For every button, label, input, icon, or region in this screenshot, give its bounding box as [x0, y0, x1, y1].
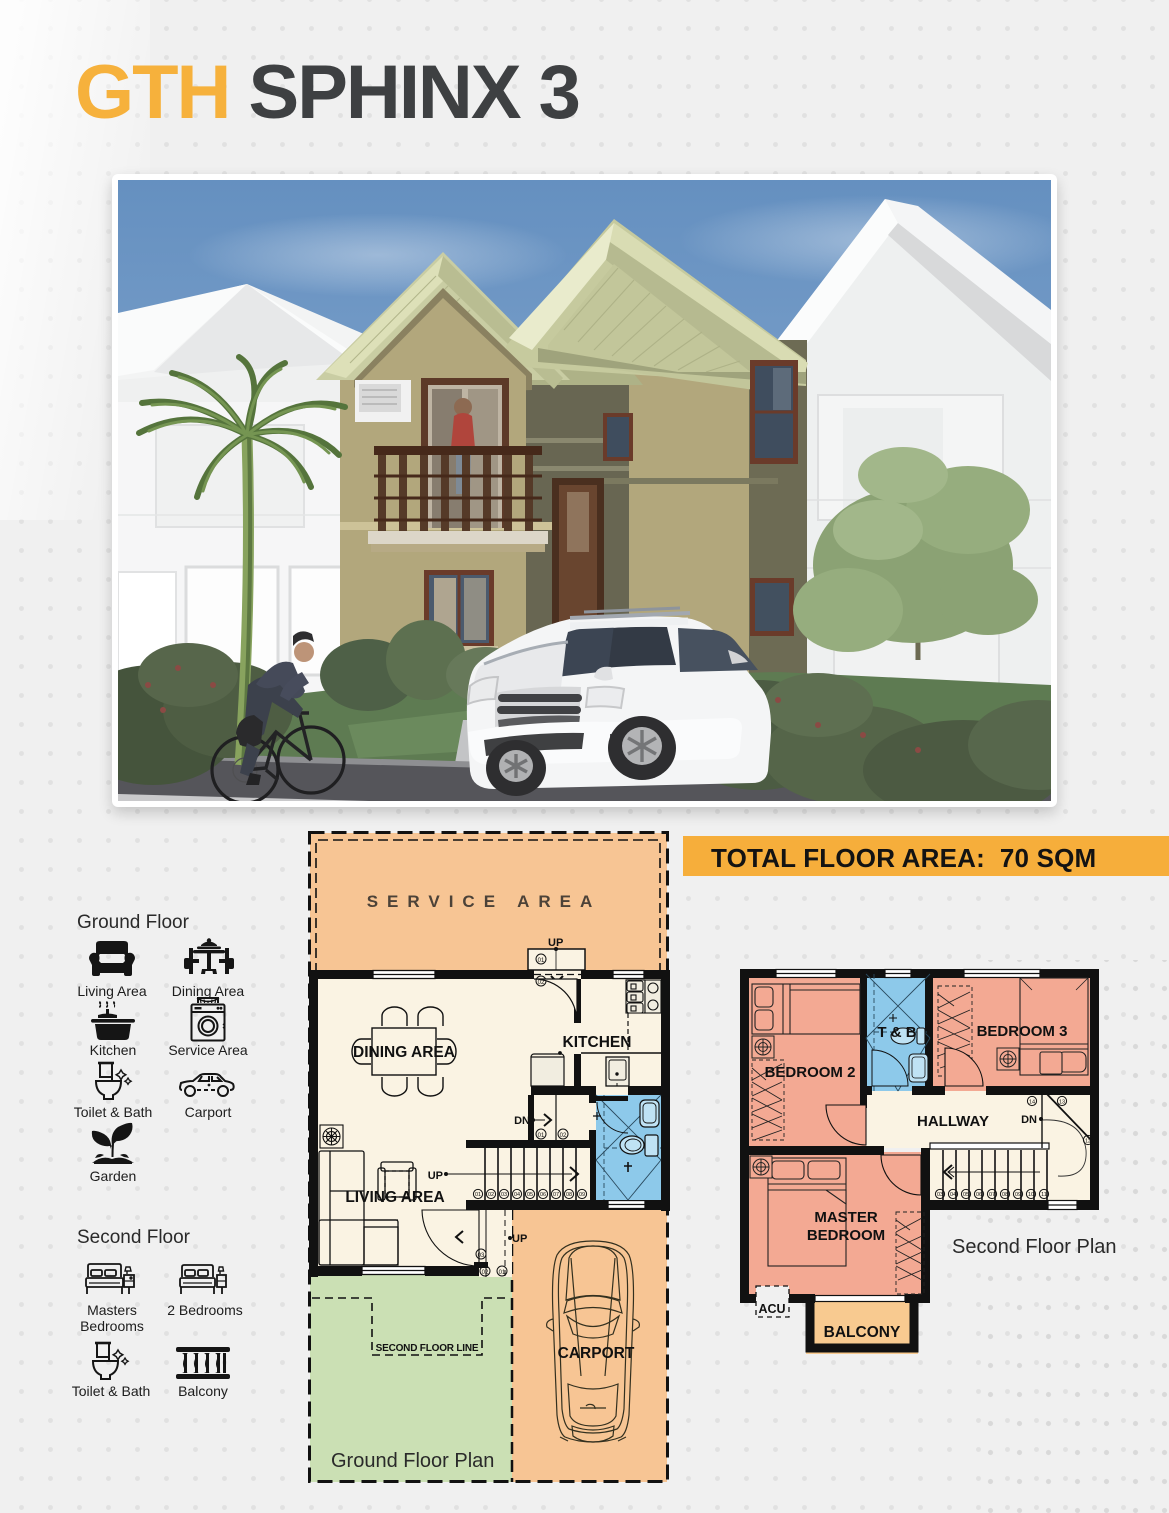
svg-text:07: 07 — [989, 1192, 995, 1198]
svg-text:DINING AREA: DINING AREA — [353, 1044, 455, 1061]
svg-text:SECOND FLOOR LINE: SECOND FLOOR LINE — [376, 1343, 479, 1354]
svg-text:05: 05 — [963, 1192, 969, 1198]
svg-text:02: 02 — [560, 1133, 567, 1139]
svg-text:02: 02 — [538, 980, 545, 986]
svg-text:06: 06 — [976, 1192, 982, 1198]
svg-text:HALLWAY: HALLWAY — [917, 1113, 989, 1130]
svg-text:CARPORT: CARPORT — [558, 1345, 635, 1362]
svg-text:KITCHEN: KITCHEN — [563, 1034, 632, 1051]
svg-text:MASTER: MASTER — [814, 1209, 878, 1226]
svg-text:03: 03 — [937, 1192, 943, 1198]
svg-text:13: 13 — [1059, 1100, 1065, 1106]
svg-text:T & B: T & B — [877, 1024, 916, 1041]
svg-text:DN: DN — [1021, 1114, 1037, 1126]
svg-text:DN: DN — [514, 1115, 530, 1127]
svg-text:08: 08 — [1002, 1192, 1008, 1198]
svg-text:BEDROOM: BEDROOM — [807, 1227, 885, 1244]
svg-text:01: 01 — [538, 958, 545, 964]
svg-text:BALCONY: BALCONY — [824, 1324, 901, 1341]
svg-text:ACU: ACU — [758, 1302, 785, 1316]
svg-text:05: 05 — [527, 1192, 533, 1198]
svg-text:LIVING AREA: LIVING AREA — [345, 1189, 444, 1206]
svg-text:01: 01 — [475, 1192, 481, 1198]
svg-text:UP: UP — [428, 1170, 443, 1182]
svg-text:03: 03 — [478, 1253, 485, 1259]
svg-text:11: 11 — [1041, 1192, 1047, 1198]
svg-text:09: 09 — [579, 1192, 585, 1198]
svg-text:09: 09 — [1015, 1192, 1021, 1198]
svg-text:08: 08 — [566, 1192, 572, 1198]
svg-text:BEDROOM 2: BEDROOM 2 — [765, 1064, 856, 1081]
svg-text:04: 04 — [950, 1192, 956, 1198]
svg-text:BEDROOM 3: BEDROOM 3 — [977, 1023, 1068, 1040]
svg-text:02: 02 — [482, 1270, 489, 1276]
svg-text:10: 10 — [1028, 1192, 1034, 1198]
svg-text:04: 04 — [514, 1192, 520, 1198]
svg-text:14: 14 — [1029, 1100, 1035, 1106]
svg-text:02: 02 — [488, 1192, 494, 1198]
svg-text:UP: UP — [512, 1233, 527, 1245]
svg-text:06: 06 — [540, 1192, 546, 1198]
svg-text:07: 07 — [553, 1192, 559, 1198]
svg-text:01: 01 — [499, 1270, 506, 1276]
svg-text:Ground Floor Plan: Ground Floor Plan — [331, 1450, 494, 1472]
svg-text:03: 03 — [501, 1192, 507, 1198]
svg-text:12: 12 — [1085, 1139, 1091, 1145]
svg-text:SERVICE AREA: SERVICE AREA — [367, 892, 602, 911]
svg-text:01: 01 — [538, 1133, 545, 1139]
